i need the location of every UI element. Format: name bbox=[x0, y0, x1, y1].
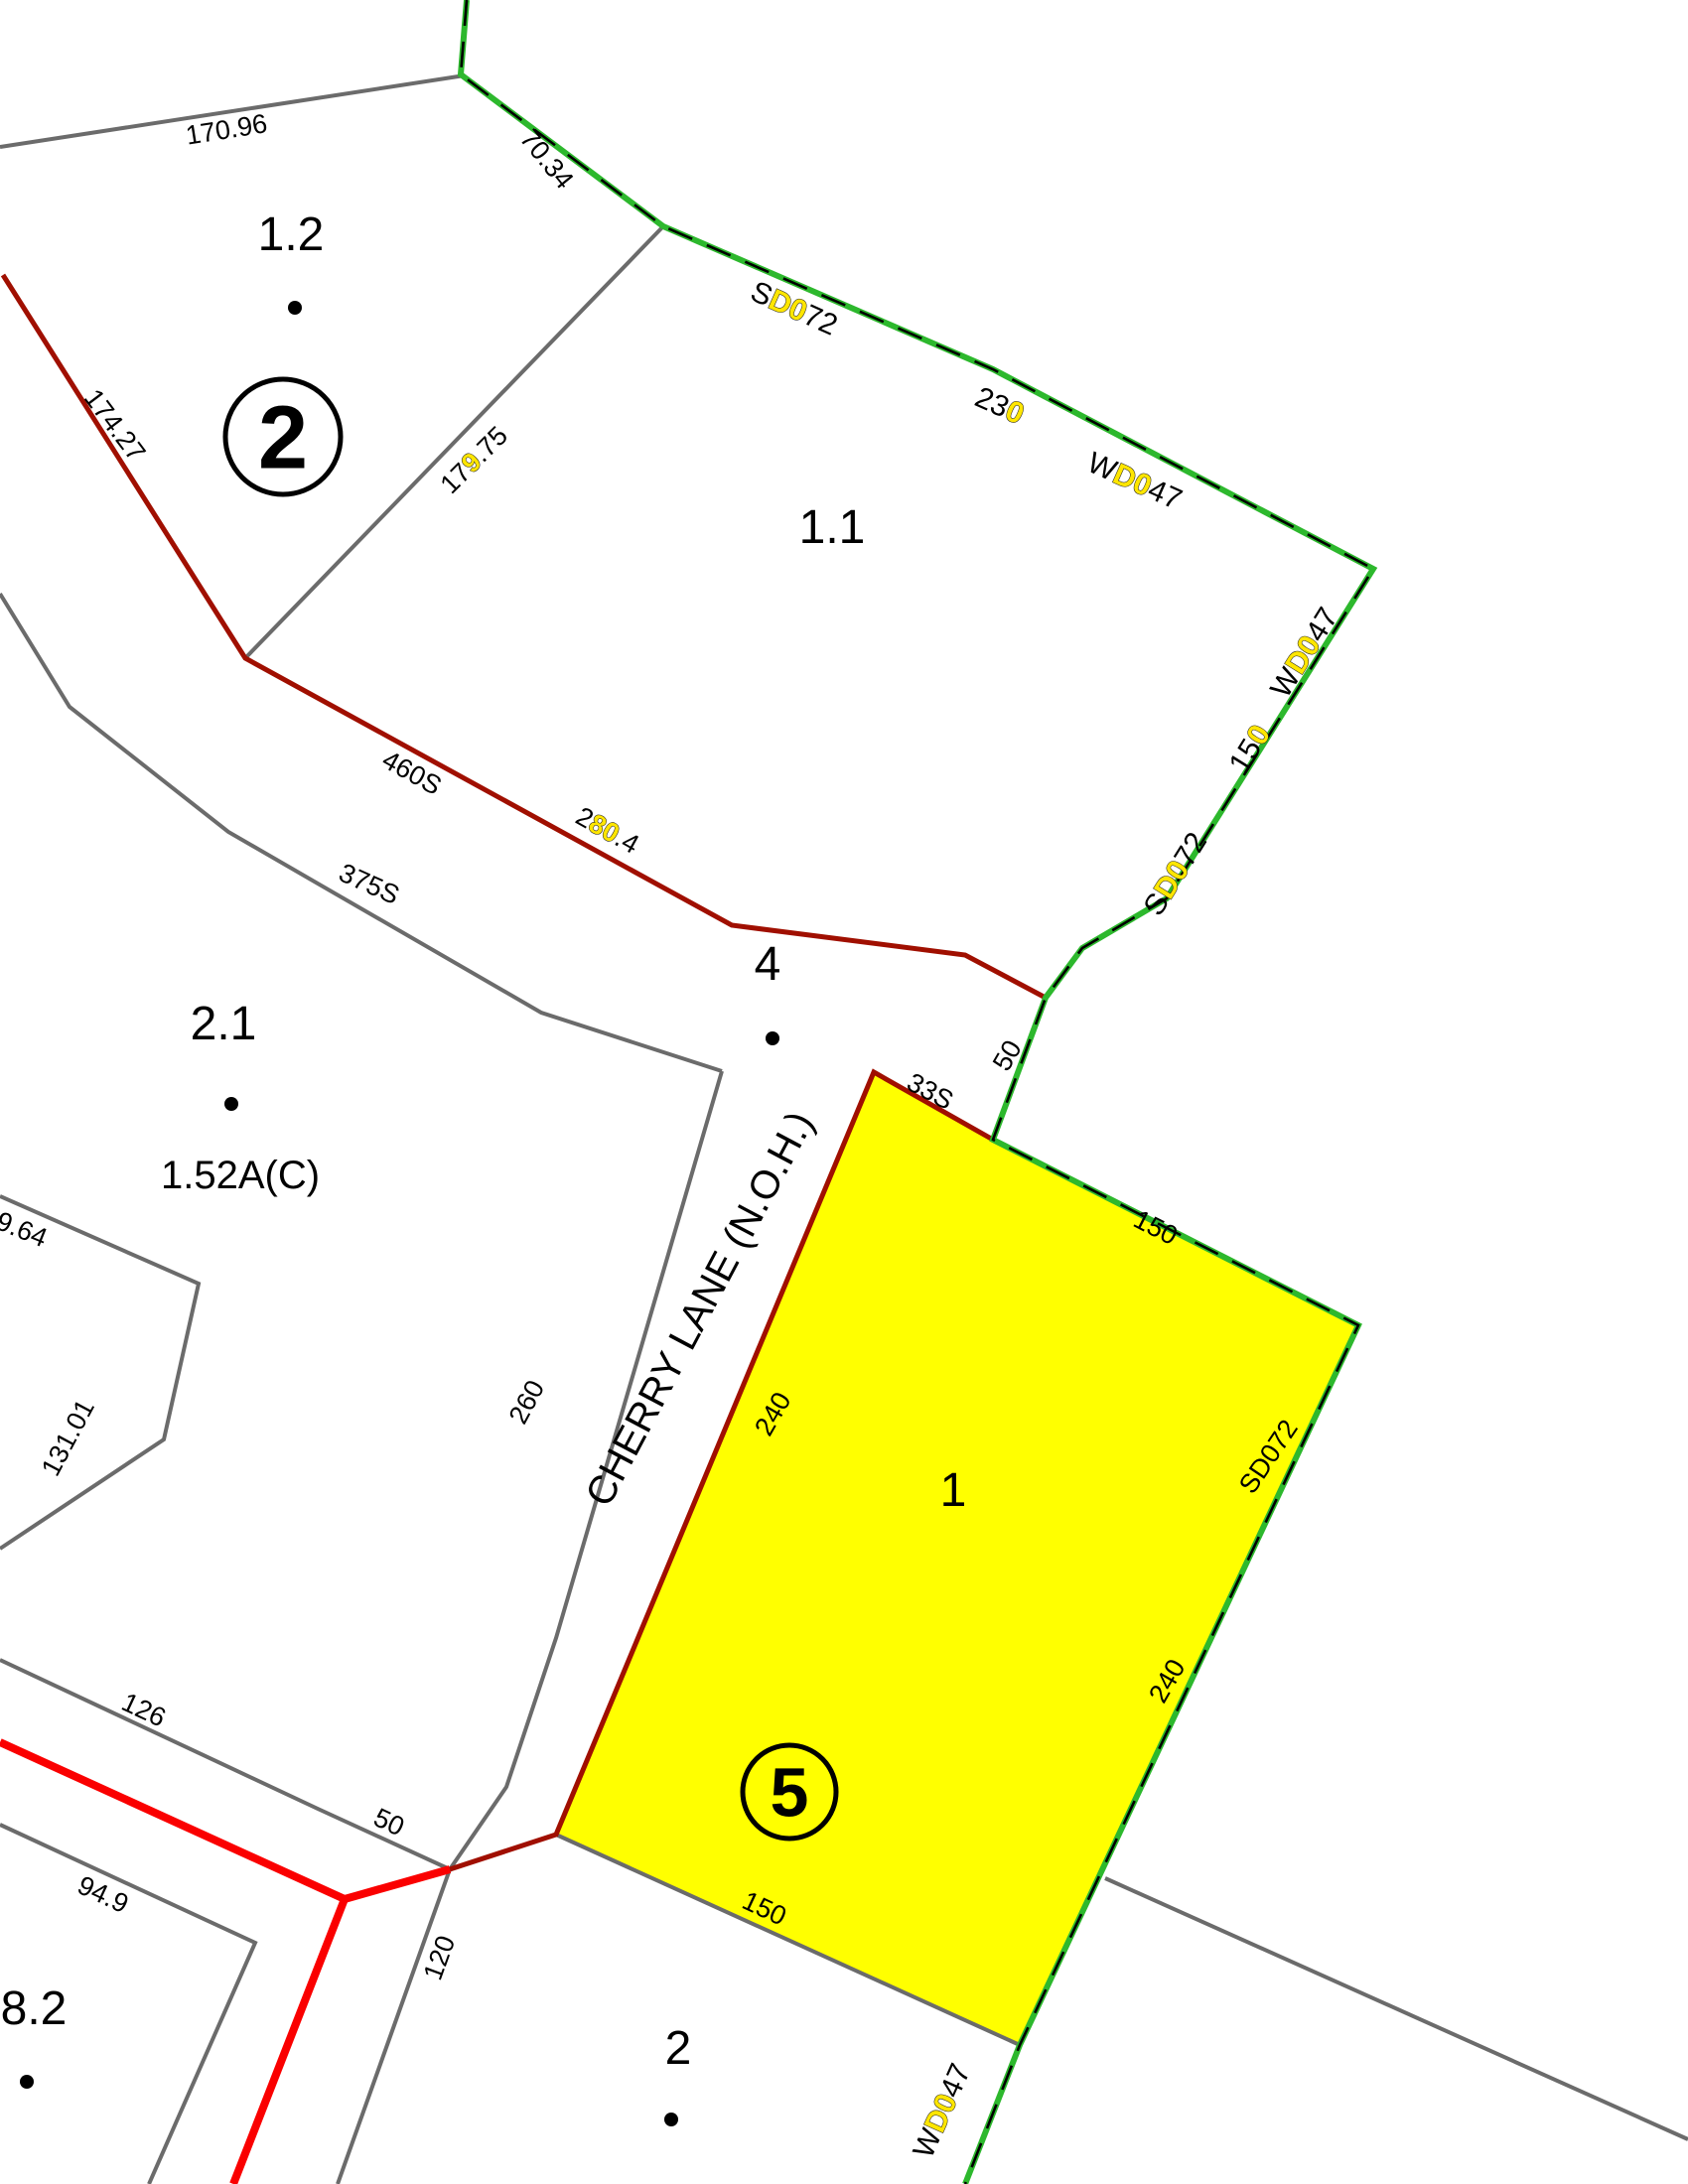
parcel-label: 2.1 bbox=[191, 998, 257, 1050]
block-number-text: 2 bbox=[258, 389, 308, 488]
parcel-label: 1.2 bbox=[258, 208, 325, 261]
parcel-centroid-dot bbox=[766, 1031, 779, 1045]
parcel-map-svg[interactable]: 170.9670.34174.27179.75460S280.4375S9.64… bbox=[0, 0, 1688, 2184]
parcel-label: 4 bbox=[755, 938, 781, 991]
parcel-label: 1.1 bbox=[799, 501, 866, 554]
parcel-centroid-dot bbox=[288, 301, 302, 315]
parcel-map-canvas[interactable]: 170.9670.34174.27179.75460S280.4375S9.64… bbox=[0, 0, 1688, 2184]
parcel-centroid-dot bbox=[20, 2075, 34, 2089]
parcel-centroid-dot bbox=[224, 1097, 238, 1111]
parcel-label: 1 bbox=[940, 1464, 967, 1517]
block-number-text: 5 bbox=[771, 1754, 809, 1832]
parcel-centroid-dot bbox=[664, 2113, 678, 2126]
parcel-label: 2 bbox=[665, 2022, 692, 2075]
parcel-label: 8.2 bbox=[1, 1982, 68, 2035]
parcel-label: 1.52A(C) bbox=[161, 1154, 320, 1197]
